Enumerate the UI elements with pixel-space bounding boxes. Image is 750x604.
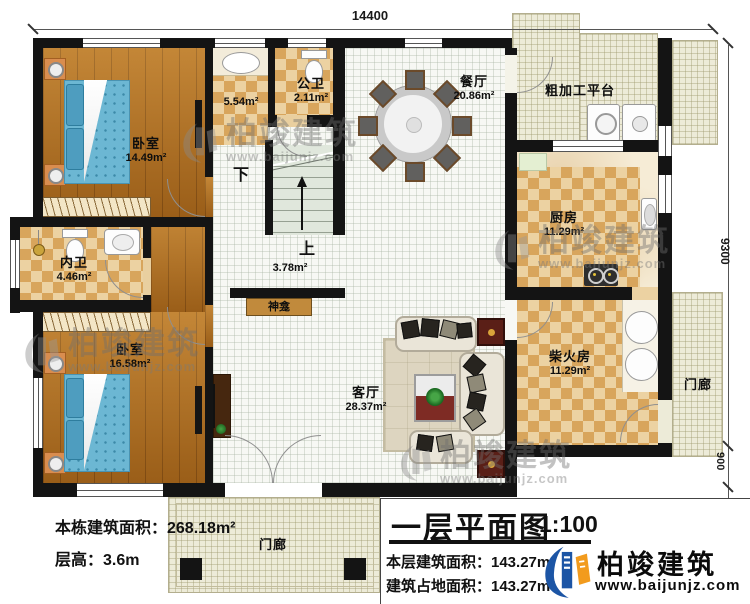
footprint-area-note: 建筑占地面积：143.27m²	[386, 575, 555, 596]
sofa-pillow	[420, 318, 440, 338]
firewood-name: 柴火房	[530, 350, 610, 365]
kitchen-area: 11.29m²	[533, 226, 595, 238]
bedroom1-tv	[195, 100, 202, 148]
floor-plan-canvas: 神龛 卧室 14.49m² 5.54m² 公卫 2.11m² 餐厅 20.86m…	[0, 0, 750, 604]
dining-chair	[405, 70, 425, 90]
innerwc-area: 4.46m²	[44, 271, 104, 283]
window-bedroom2-bottom	[77, 483, 163, 497]
window-innerwc-left	[10, 240, 20, 288]
dimension-width-label: 14400	[320, 8, 420, 23]
dining-table-center	[406, 117, 422, 133]
bedroom1-wardrobe	[33, 197, 151, 217]
wall-innerwc-bottom	[10, 300, 151, 312]
sofa-pillow	[456, 322, 472, 338]
window-washroom-top	[215, 38, 265, 48]
bedroom-corridor-floor	[151, 217, 213, 312]
publicwc-area: 2.11m²	[284, 92, 338, 104]
kitchen-label: 厨房 11.29m²	[533, 211, 595, 238]
brand-logo-icon	[541, 541, 593, 601]
burner-icon	[603, 268, 619, 284]
bedroom1-area: 14.49m²	[106, 152, 186, 164]
living-label: 客厅 28.37m²	[330, 386, 402, 413]
shrine-label: 神龛	[268, 301, 290, 313]
porch-column	[180, 558, 202, 580]
stair-hall-area-label: 3.78m²	[260, 262, 320, 274]
bed2-pillow	[66, 378, 84, 418]
note-floor-height: 层高：3.6m	[55, 546, 139, 570]
washing-machine-drum	[595, 113, 617, 135]
washbasin-icon	[222, 52, 260, 74]
brand-url: www.baijunjz.com	[595, 577, 740, 594]
door-gap-bedroom2	[205, 305, 213, 347]
door-gap-innerwc	[143, 258, 151, 295]
end-table-ornament	[488, 329, 495, 336]
firewood-label: 柴火房 11.29m²	[530, 350, 610, 377]
stair-down-label: 下	[233, 161, 249, 185]
dimension-line-right-2	[728, 448, 729, 489]
shrine-box: 神龛	[246, 298, 312, 316]
wall-stair-left	[265, 140, 273, 235]
plant-icon	[216, 424, 226, 434]
shower-head-icon	[33, 244, 45, 256]
dining-chair	[405, 162, 425, 182]
window-bedroom2-left	[33, 378, 43, 448]
note-building-area: 本栋建筑面积：268.18m²	[55, 514, 236, 538]
window-platform-right	[658, 126, 672, 156]
wall-firewood-bottom	[505, 445, 672, 457]
platform-label: 粗加工平台	[515, 84, 645, 99]
innerwc-name: 内卫	[44, 256, 104, 271]
kitchen-sink-basin	[644, 204, 656, 226]
sofa-pillow	[416, 434, 434, 452]
stair-arrow-line	[301, 185, 303, 230]
dimension-height-label: 9300	[718, 238, 732, 265]
sofa-pillow	[436, 434, 455, 453]
wall-bedroom-right	[205, 48, 213, 497]
dining-label: 餐厅 20.86m²	[443, 75, 505, 102]
porch-right-top-floor	[672, 40, 718, 145]
dining-chair	[358, 116, 378, 136]
door-gap-kitchen-firewood	[632, 287, 658, 300]
door-gap-bedroom1	[205, 177, 213, 217]
washroom-area-label: 5.54m²	[206, 96, 276, 108]
sink-basin-icon	[112, 234, 134, 251]
utility-sink-basin	[632, 116, 648, 132]
bedroom2-label: 卧室 16.58m²	[100, 343, 160, 370]
lamp-icon	[48, 168, 64, 184]
living-name: 客厅	[330, 386, 402, 401]
door-gap-publicwc	[277, 115, 307, 127]
title-block: 一层平面图 1:100 本层建筑面积：143.27m² 建筑占地面积：143.2…	[380, 498, 750, 604]
wall-stair-right	[333, 38, 345, 235]
publicwc-label: 公卫 2.11m²	[284, 77, 338, 104]
burner-icon	[588, 268, 604, 284]
innerwc-label: 内卫 4.46m²	[44, 256, 104, 283]
door-gap-firewood-porch	[658, 400, 672, 443]
sofa-pillow	[401, 320, 421, 340]
drawing-scale: 1:100	[539, 511, 598, 538]
living-area: 28.37m²	[330, 401, 402, 413]
door-gap-entrance	[225, 483, 322, 497]
kitchen-name: 厨房	[533, 211, 595, 226]
porch-column	[344, 558, 366, 580]
bedroom1-label: 卧室 14.49m²	[106, 137, 186, 164]
dining-name: 餐厅	[443, 75, 505, 90]
wall-shrine	[230, 288, 345, 298]
bedroom1-name: 卧室	[106, 137, 186, 152]
publicwc-name: 公卫	[284, 77, 338, 92]
bedroom2-name: 卧室	[100, 343, 160, 358]
stove-pot-icon	[625, 348, 658, 381]
stove-pot-icon	[625, 311, 658, 344]
stair-arrow-head-icon	[297, 176, 307, 187]
stair-up-label: 上	[299, 235, 315, 259]
burner-dot	[608, 273, 611, 276]
porch-right-floor	[672, 292, 723, 457]
bed2-pillow	[66, 420, 84, 460]
bed1-pillow	[66, 128, 84, 170]
bedroom2-tv	[195, 386, 202, 434]
bed1-pillow	[66, 84, 84, 126]
window-passthrough	[553, 140, 623, 152]
plant-icon	[426, 388, 444, 406]
wall-right	[658, 38, 672, 445]
firewood-area: 11.29m²	[530, 365, 610, 377]
window-dining-top	[405, 38, 442, 48]
lamp-icon	[48, 62, 64, 78]
porch-front-label: 门廊	[243, 538, 303, 553]
window-publicwc-top	[288, 38, 326, 48]
floor-area-note: 本层建筑面积：143.27m²	[386, 551, 555, 572]
porch-right-label: 门廊	[676, 378, 720, 393]
wall-innerwc-top	[10, 217, 213, 227]
lamp-icon	[48, 356, 64, 372]
bedroom2-wardrobe	[33, 312, 151, 332]
lamp-icon	[48, 456, 64, 472]
end-table-ornament	[488, 461, 495, 468]
dining-area: 20.86m²	[443, 90, 505, 102]
kitchen-appliance	[519, 153, 547, 171]
wall-left-upper	[33, 38, 43, 218]
bedroom2-area: 16.58m²	[100, 358, 160, 370]
window-bedroom1-top	[83, 38, 160, 48]
window-kitchen-right	[658, 175, 672, 213]
dimension-porch-right-label: 900	[714, 452, 726, 470]
toilet-icon	[62, 229, 88, 238]
dining-chair	[452, 116, 472, 136]
dimension-line-top	[33, 29, 713, 30]
toilet-icon	[301, 50, 327, 59]
door-gap-firewood	[505, 300, 517, 340]
burner-dot	[593, 273, 596, 276]
